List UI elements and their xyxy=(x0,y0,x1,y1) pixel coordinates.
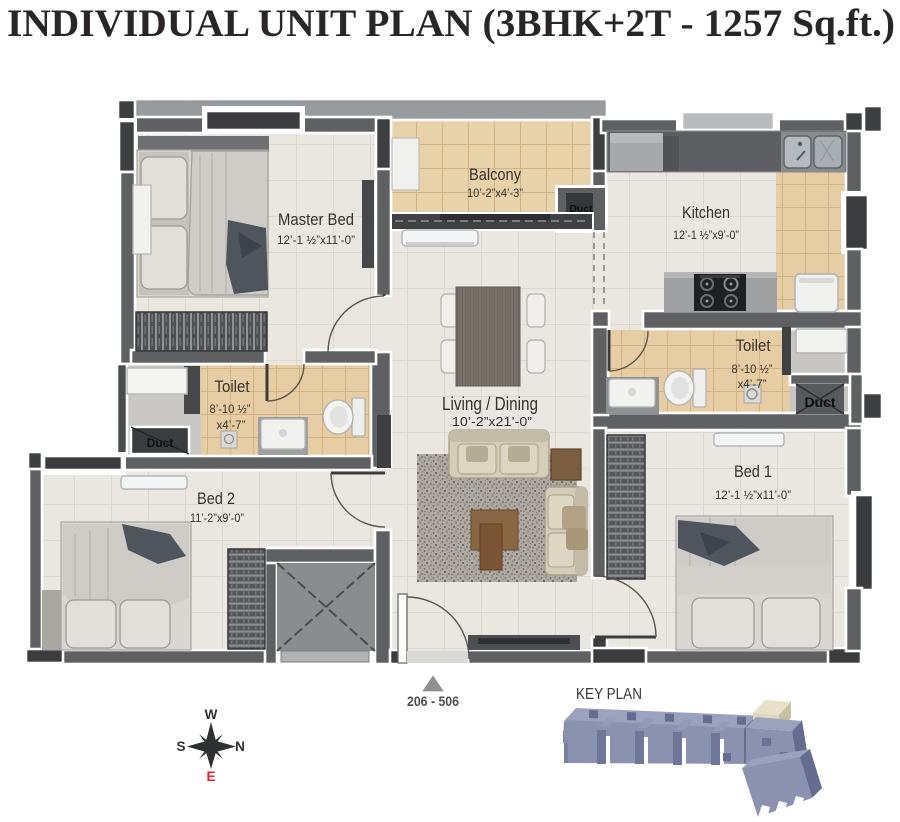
svg-text:10’-2”x21’-0”: 10’-2”x21’-0” xyxy=(452,415,532,429)
svg-text:KEY PLAN: KEY PLAN xyxy=(576,686,642,703)
svg-text:8’-10 ½”: 8’-10 ½” xyxy=(732,362,773,376)
svg-text:11’-2”x9’-0”: 11’-2”x9’-0” xyxy=(190,511,244,525)
svg-text:10’-2”x4’-3”: 10’-2”x4’-3” xyxy=(467,186,523,200)
svg-text:Toilet: Toilet xyxy=(736,336,771,355)
svg-text:8’-10 ½”: 8’-10 ½” xyxy=(210,402,251,416)
svg-text:INDIVIDUAL UNIT PLAN (3BHK+2T: INDIVIDUAL UNIT PLAN (3BHK+2T - 1257 Sq.… xyxy=(7,2,895,45)
svg-text:W: W xyxy=(205,707,218,722)
svg-text:12’-1 ½”x9’-0”: 12’-1 ½”x9’-0” xyxy=(673,228,739,242)
svg-text:12’-1 ½”x11’-0”: 12’-1 ½”x11’-0” xyxy=(715,488,791,502)
svg-text:206 - 506: 206 - 506 xyxy=(407,693,459,709)
svg-text:x4’-7”: x4’-7” xyxy=(738,377,767,391)
svg-text:Balcony: Balcony xyxy=(469,165,521,184)
svg-text:Duct: Duct xyxy=(805,395,837,410)
svg-text:Living / Dining: Living / Dining xyxy=(442,394,538,414)
svg-text:Master Bed: Master Bed xyxy=(278,210,354,229)
svg-text:Bed 1: Bed 1 xyxy=(734,462,772,481)
svg-text:12’-1 ½”x11’-0”: 12’-1 ½”x11’-0” xyxy=(277,233,355,247)
svg-text:Bed 2: Bed 2 xyxy=(197,489,235,508)
svg-text:N: N xyxy=(235,739,245,754)
svg-text:S: S xyxy=(176,739,185,754)
svg-text:Toilet: Toilet xyxy=(215,377,250,396)
svg-text:Kitchen: Kitchen xyxy=(682,203,730,222)
svg-text:Duct: Duct xyxy=(147,436,174,450)
svg-text:x4’-7”: x4’-7” xyxy=(217,418,246,432)
svg-text:E: E xyxy=(206,769,215,784)
